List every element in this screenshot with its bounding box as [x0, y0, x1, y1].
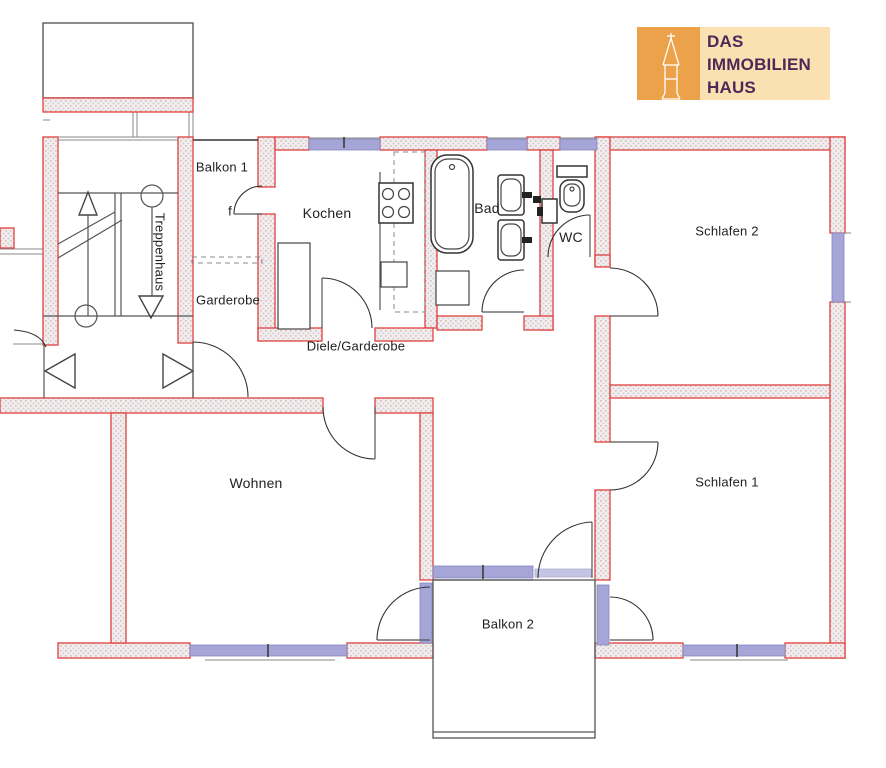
room-label-wc: WC	[559, 229, 583, 245]
room-label-diele-garderobe: Diele/Garderobe	[307, 339, 405, 354]
logo-line-1: DAS	[707, 30, 830, 53]
room-label-schlafen-2: Schlafen 2	[695, 224, 758, 239]
entrance-arrows	[13, 330, 193, 398]
floor-plan-page: Balkon 1 Treppenhaus Kochen f Garderobe …	[0, 0, 886, 768]
bathroom-fixtures	[431, 155, 532, 305]
upper-balcony-outline	[43, 23, 193, 137]
room-label-garderobe: Garderobe	[196, 293, 260, 308]
balcony-1-outline	[192, 140, 262, 263]
logo-text: DAS IMMOBILIEN HAUS	[700, 27, 830, 100]
company-logo: DAS IMMOBILIEN HAUS	[637, 27, 830, 100]
kitchen-fixtures	[278, 152, 425, 329]
room-label-balkon-1: Balkon 1	[196, 160, 248, 175]
room-label-wohnen: Wohnen	[229, 475, 282, 491]
logo-orange-square	[637, 27, 700, 100]
room-label-schlafen-1: Schlafen 1	[695, 475, 758, 490]
balcony-2-outline	[433, 580, 595, 738]
door-label-f: f	[228, 204, 232, 219]
floor-plan-drawing	[0, 0, 886, 768]
room-label-bad: Bad	[474, 200, 500, 216]
room-label-balkon-2: Balkon 2	[482, 617, 534, 632]
logo-line-3: HAUS	[707, 76, 830, 99]
room-label-kochen: Kochen	[303, 205, 352, 221]
walls	[0, 98, 845, 658]
church-tower-icon	[637, 27, 700, 100]
logo-line-2: IMMOBILIEN	[707, 53, 830, 76]
room-label-treppenhaus: Treppenhaus	[153, 213, 168, 291]
